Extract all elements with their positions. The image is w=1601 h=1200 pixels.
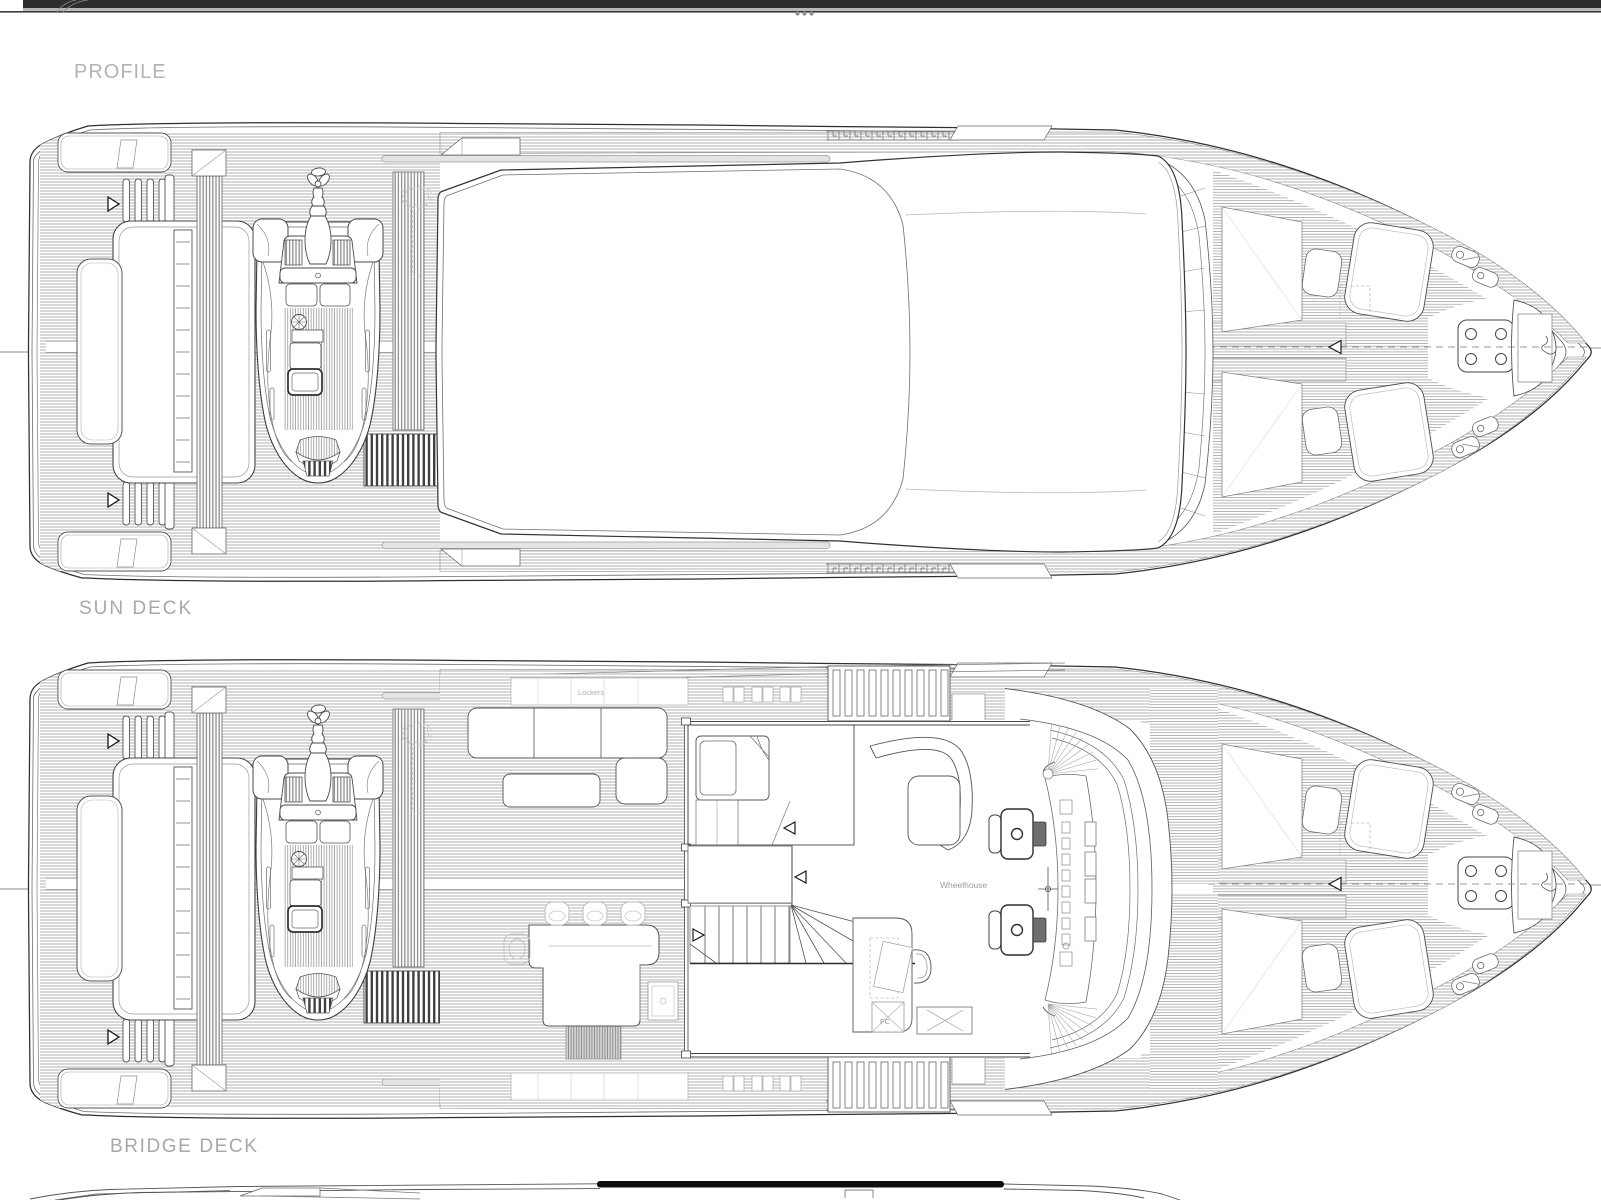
svg-text:Lockers: Lockers [578,688,605,697]
svg-text:PROFILE: PROFILE [74,61,167,83]
svg-text:FC: FC [880,1017,891,1026]
svg-text:BRIDGE DECK: BRIDGE DECK [110,1136,259,1157]
svg-text:Wheelhouse: Wheelhouse [940,880,988,890]
svg-text:SUN DECK: SUN DECK [79,598,193,619]
